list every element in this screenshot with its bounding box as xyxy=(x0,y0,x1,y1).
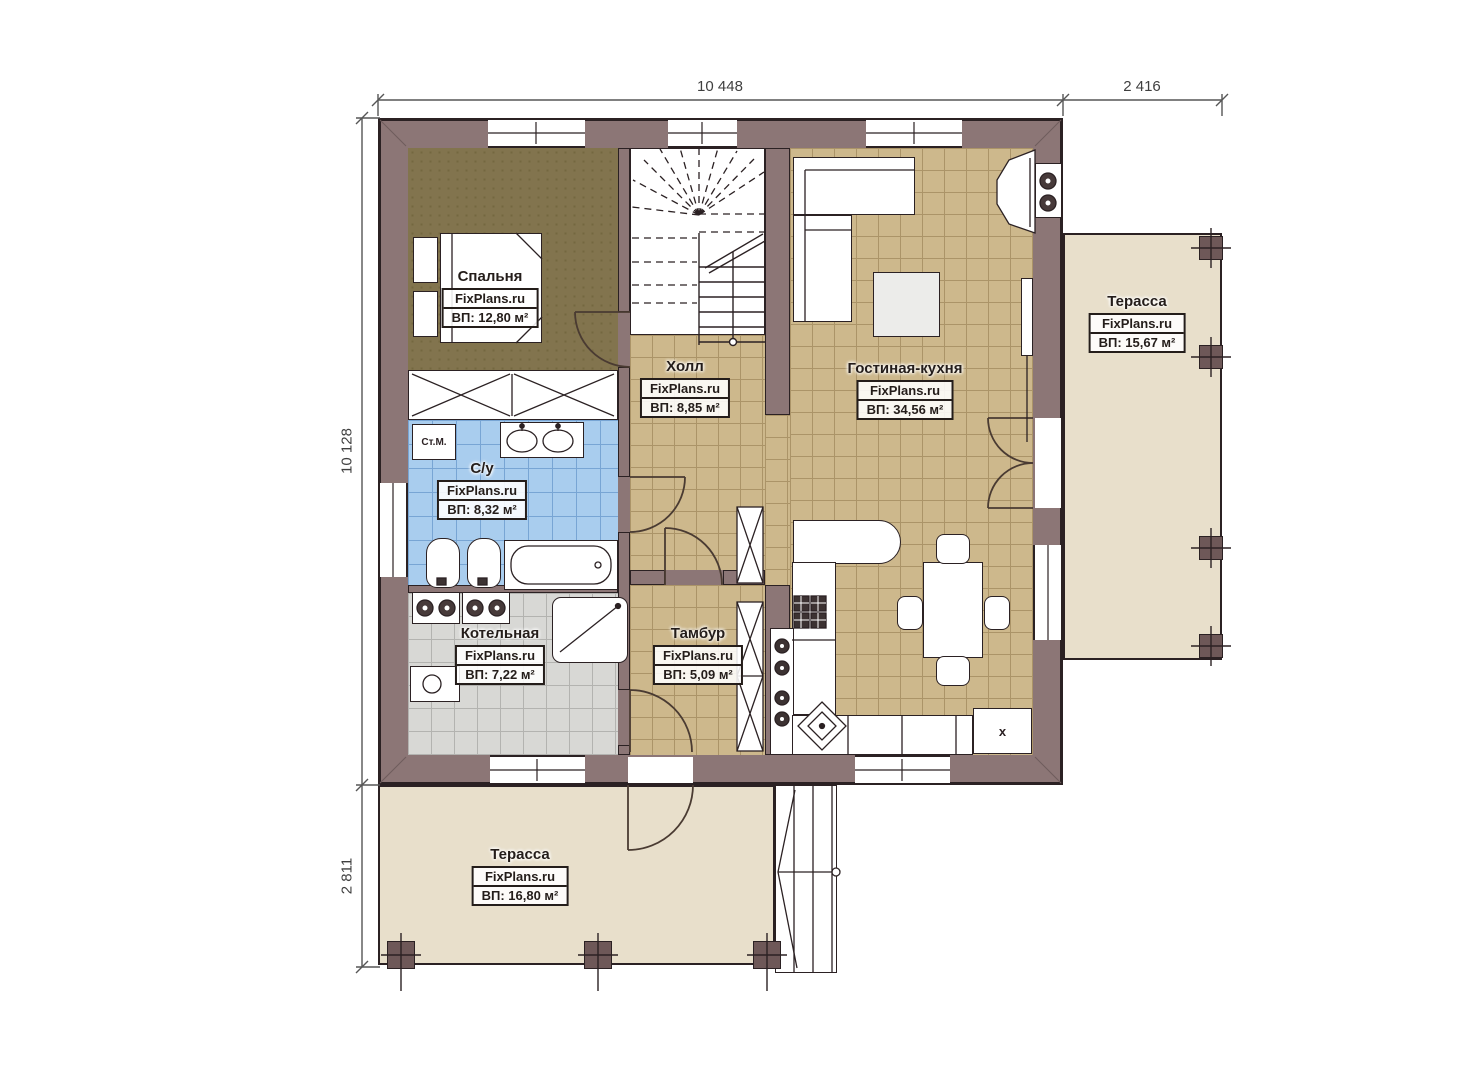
terrace-post xyxy=(1199,634,1223,658)
room-area-box: FixPlans.ru ВП: 16,80 м² xyxy=(472,866,569,906)
terrace-post xyxy=(584,941,612,969)
room-label-hall: Холл FixPlans.ru ВП: 8,85 м² xyxy=(640,358,730,418)
room-area-box: FixPlans.ru ВП: 15,67 м² xyxy=(1089,313,1186,353)
oven-column xyxy=(770,628,794,755)
wall-hall-living-upper xyxy=(765,148,790,415)
brand-watermark: FixPlans.ru xyxy=(655,647,741,666)
terrace-bottom-floor xyxy=(378,785,775,965)
room-label-living-kitchen: Гостиная-кухня FixPlans.ru ВП: 34,56 м² xyxy=(848,360,963,420)
terrace-door-opening xyxy=(1035,418,1061,508)
brand-watermark: FixPlans.ru xyxy=(439,482,525,501)
wall-hall-vestibule-right xyxy=(723,570,765,585)
window-bedroom-top xyxy=(488,118,585,148)
room-name: Спальня xyxy=(442,268,539,285)
chair-top xyxy=(936,534,970,564)
room-area: ВП: 8,32 м² xyxy=(439,501,525,518)
nightstand-top xyxy=(413,237,438,283)
brand-watermark: FixPlans.ru xyxy=(642,380,728,399)
sofa-top-section xyxy=(793,157,915,215)
chair-left xyxy=(897,596,923,630)
window-stairs-top xyxy=(668,118,737,148)
window-living-top xyxy=(866,118,962,148)
room-area: ВП: 34,56 м² xyxy=(859,401,952,418)
room-name: Терасса xyxy=(472,846,569,863)
floor-plan-canvas: 10 448 2 416 10 128 2 811 Ст.М. xyxy=(0,0,1473,1080)
dimension-top-right: 2 416 xyxy=(1123,78,1161,95)
wardrobe-cabinet xyxy=(408,370,618,420)
entrance-steps xyxy=(775,785,837,973)
boiler-unit-1 xyxy=(412,592,460,624)
terrace-post xyxy=(1199,236,1223,260)
brand-watermark: FixPlans.ru xyxy=(1091,315,1184,334)
vanity-double-sink xyxy=(500,422,584,458)
room-name: Терасса xyxy=(1089,293,1186,310)
wall-bedroom-stairs xyxy=(618,148,630,312)
bar-counter xyxy=(793,520,901,564)
terrace-post xyxy=(387,941,415,969)
chair-bottom xyxy=(936,656,970,686)
room-area: ВП: 7,22 м² xyxy=(457,666,543,683)
stairwell xyxy=(630,148,765,335)
nightstand-bottom xyxy=(413,291,438,337)
terrace-post xyxy=(1199,536,1223,560)
appliance-x: x xyxy=(973,708,1032,754)
room-area: ВП: 15,67 м² xyxy=(1091,334,1184,351)
toilet-2 xyxy=(467,538,501,588)
entrance-door-opening xyxy=(628,757,693,783)
room-label-bedroom: Спальня FixPlans.ru ВП: 12,80 м² xyxy=(442,268,539,328)
boiler-unit-2 xyxy=(462,592,510,624)
window-kitchen-bottom xyxy=(855,755,950,785)
brand-watermark: FixPlans.ru xyxy=(457,647,543,666)
room-label-boiler: Котельная FixPlans.ru ВП: 7,22 м² xyxy=(455,625,545,685)
room-name: Тамбур xyxy=(653,625,743,642)
brand-watermark: FixPlans.ru xyxy=(474,868,567,887)
window-boiler-bottom xyxy=(490,755,585,785)
brand-watermark: FixPlans.ru xyxy=(859,382,952,401)
room-label-bathroom: С/у FixPlans.ru ВП: 8,32 м² xyxy=(437,460,527,520)
room-label-vestibule: Тамбур FixPlans.ru ВП: 5,09 м² xyxy=(653,625,743,685)
room-label-terrace-bottom: Терасса FixPlans.ru ВП: 16,80 м² xyxy=(472,846,569,906)
room-area-box: FixPlans.ru ВП: 34,56 м² xyxy=(857,380,954,420)
dimension-left: 10 128 xyxy=(339,428,356,474)
room-name: Гостиная-кухня xyxy=(848,360,963,377)
kitchen-counter-bottom xyxy=(792,715,973,755)
room-label-terrace-right: Терасса FixPlans.ru ВП: 15,67 м² xyxy=(1089,293,1186,353)
room-area: ВП: 8,85 м² xyxy=(642,399,728,416)
toilet-1 xyxy=(426,538,460,588)
shower-tray xyxy=(552,597,628,663)
terrace-post xyxy=(1199,345,1223,369)
appliance-x-label: x xyxy=(999,724,1006,739)
wall-boiler-vestibule-stub xyxy=(618,745,630,755)
terrace-post xyxy=(753,941,781,969)
bathtub xyxy=(504,540,618,590)
utility-unit xyxy=(410,666,460,702)
window-bathroom-left xyxy=(378,483,408,577)
room-area-box: FixPlans.ru ВП: 7,22 м² xyxy=(455,645,545,685)
room-area: ВП: 12,80 м² xyxy=(444,309,537,326)
sofa-left-section xyxy=(793,215,852,322)
dimension-top: 10 448 xyxy=(697,78,743,95)
tv-console xyxy=(1021,278,1033,356)
room-area-box: FixPlans.ru ВП: 5,09 м² xyxy=(653,645,743,685)
dining-table xyxy=(923,562,983,658)
hall-living-passage xyxy=(765,415,790,585)
window-living-right xyxy=(1033,545,1063,640)
room-name: Котельная xyxy=(455,625,545,642)
chair-right xyxy=(984,596,1010,630)
kitchen-counter-left xyxy=(792,562,836,715)
wall-bathroom-hall-upper xyxy=(618,367,630,477)
brand-watermark: FixPlans.ru xyxy=(444,290,537,309)
fireplace-flue-box xyxy=(1035,163,1062,218)
room-area-box: FixPlans.ru ВП: 8,32 м² xyxy=(437,480,527,520)
dimension-bottom-left: 2 811 xyxy=(339,858,356,894)
room-name: Холл xyxy=(640,358,730,375)
room-area: ВП: 5,09 м² xyxy=(655,666,741,683)
room-area-box: FixPlans.ru ВП: 12,80 м² xyxy=(442,288,539,328)
washing-machine: Ст.М. xyxy=(412,424,456,460)
room-area: ВП: 16,80 м² xyxy=(474,887,567,904)
coffee-table xyxy=(873,272,940,337)
washing-machine-label: Ст.М. xyxy=(421,437,446,448)
room-name: С/у xyxy=(437,460,527,477)
room-area-box: FixPlans.ru ВП: 8,85 м² xyxy=(640,378,730,418)
wall-hall-vestibule-left xyxy=(630,570,665,585)
